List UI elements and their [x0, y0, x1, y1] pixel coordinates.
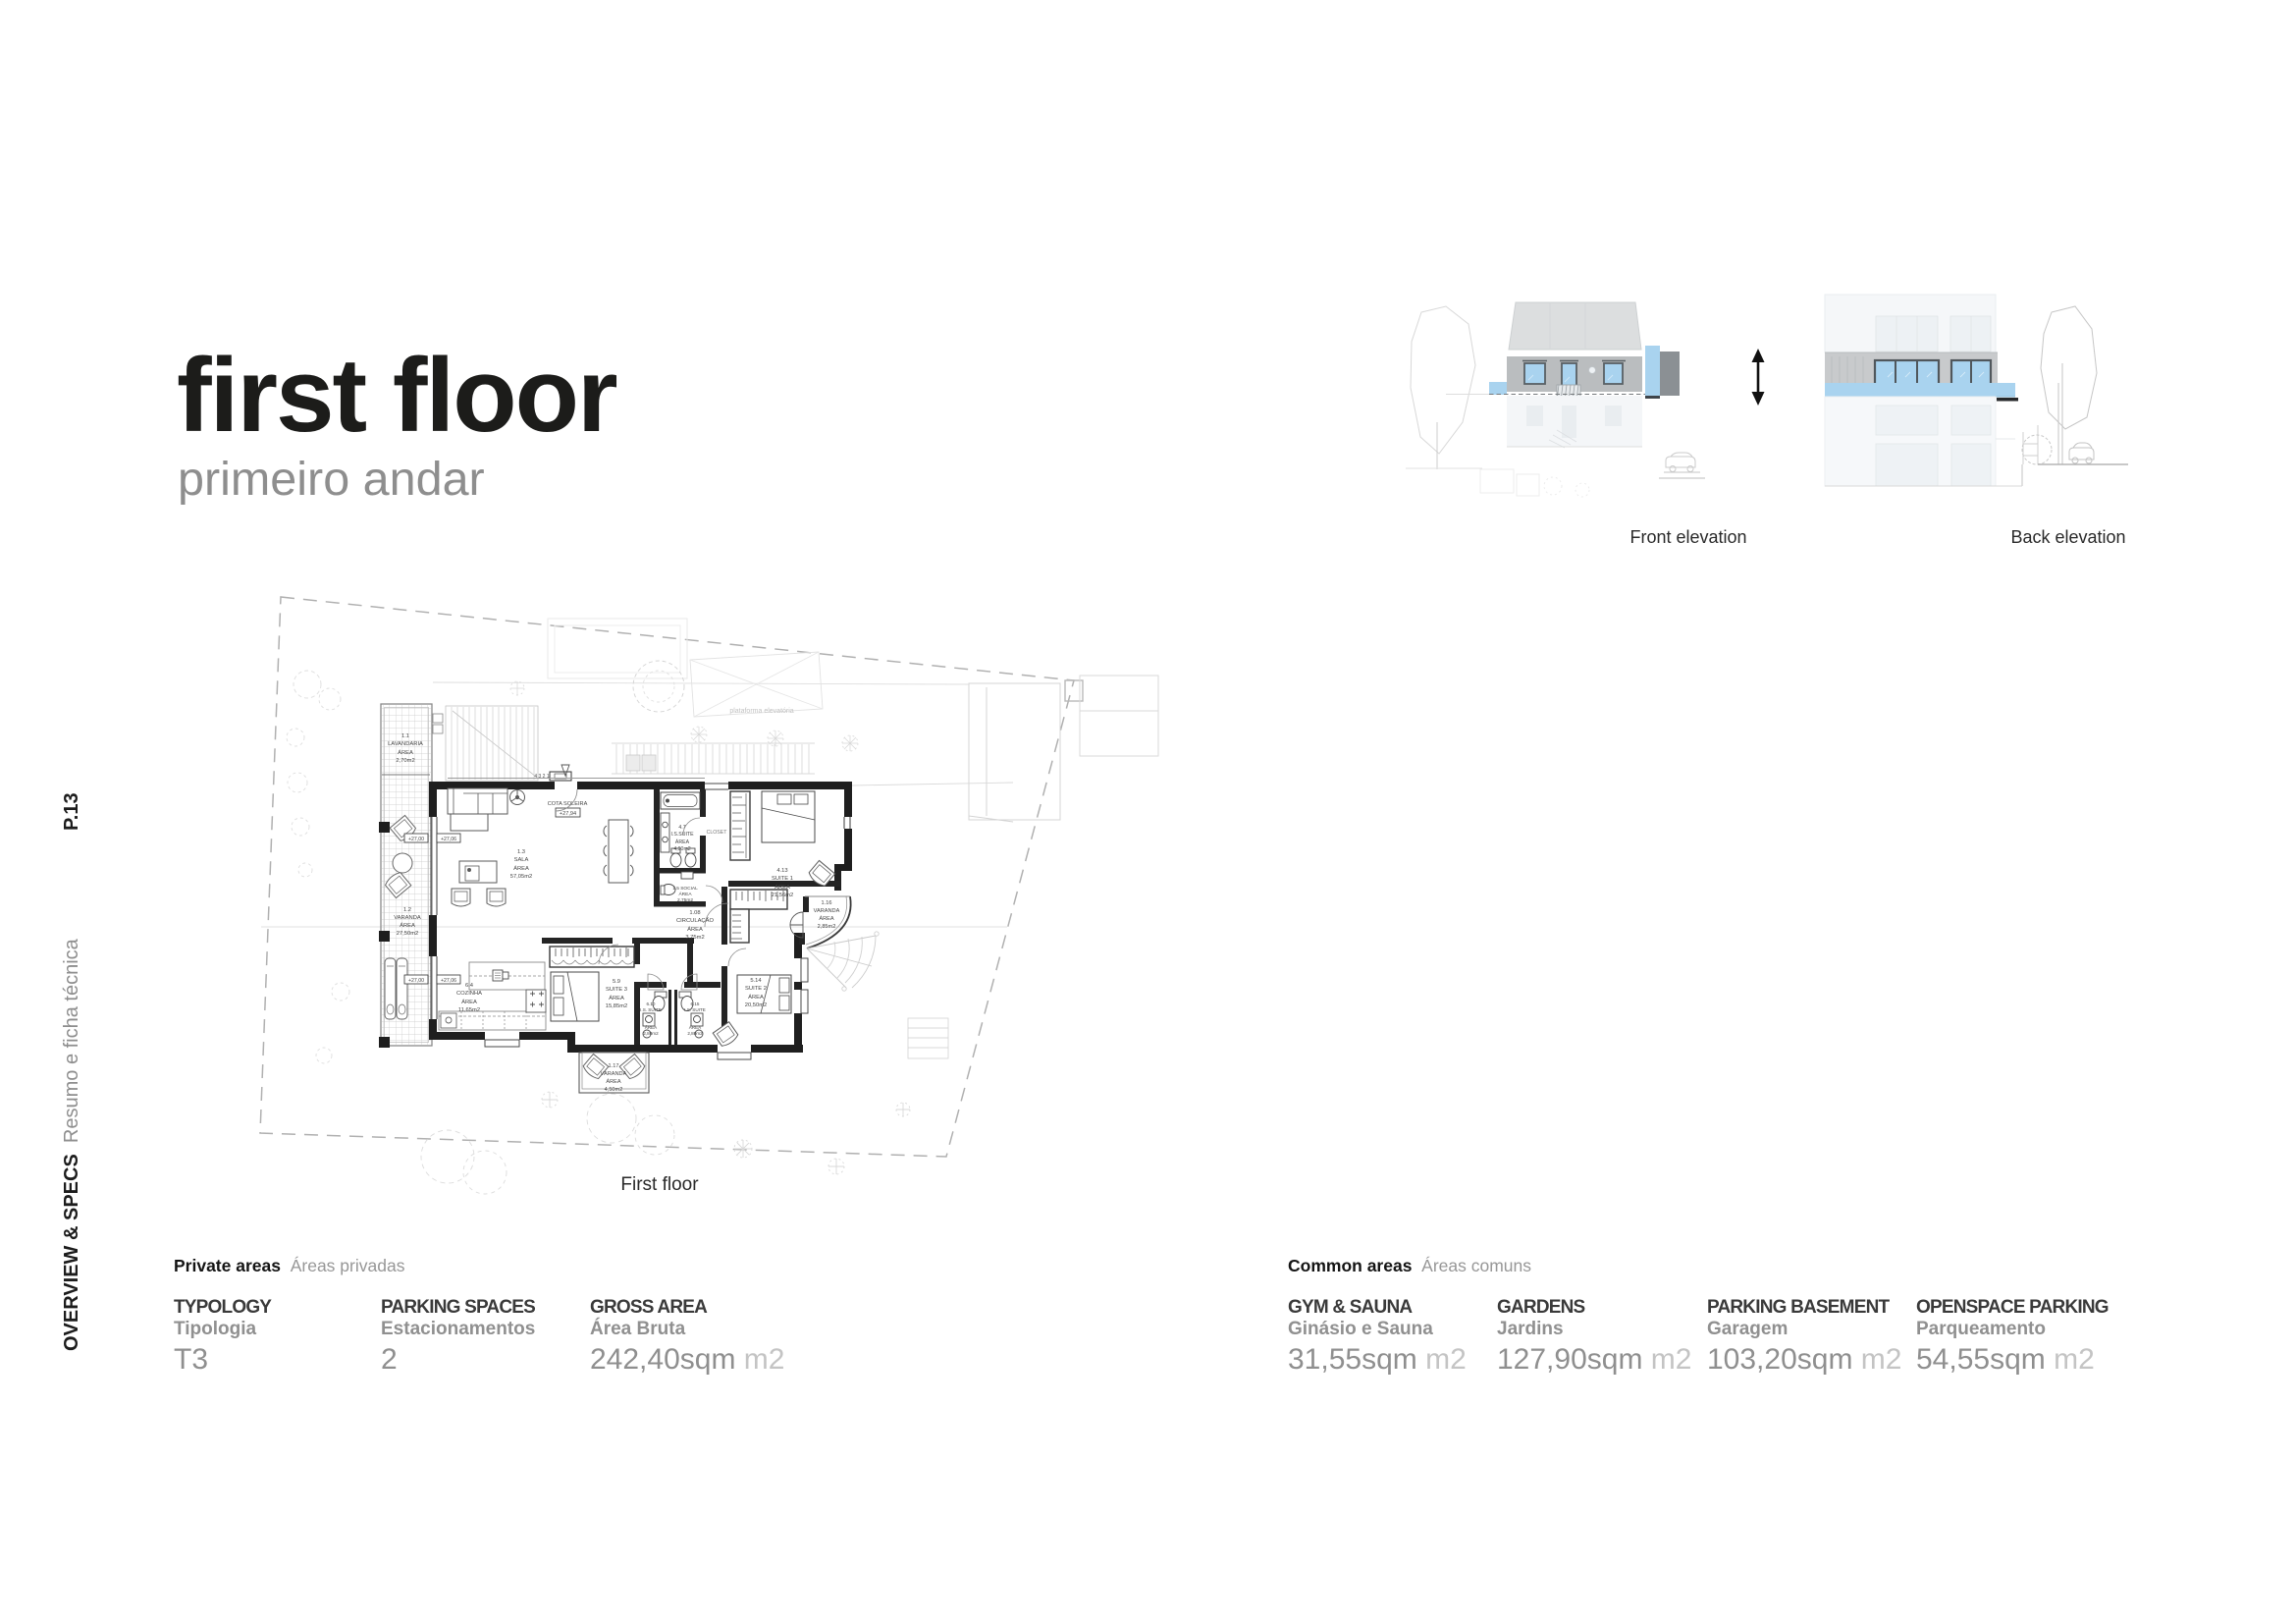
- svg-text:plataforma elevatória: plataforma elevatória: [729, 708, 793, 715]
- svg-text:ÁREA: ÁREA: [748, 994, 764, 1001]
- svg-text:6.15: 6.15: [691, 1001, 700, 1006]
- svg-text:1.1: 1.1: [401, 733, 409, 739]
- svg-text:SALA: SALA: [514, 857, 529, 863]
- svg-text:ÁREA: ÁREA: [678, 891, 692, 897]
- svg-text:ÁREA: ÁREA: [675, 839, 690, 845]
- svg-text:2,80m2: 2,80m2: [643, 1031, 659, 1036]
- svg-text:5.14: 5.14: [750, 978, 762, 984]
- svg-text:1.2: 1.2: [403, 907, 411, 913]
- svg-text:ÁREA: ÁREA: [513, 865, 529, 872]
- svg-text:VARANDA: VARANDA: [601, 1071, 627, 1077]
- svg-text:5.9: 5.9: [613, 979, 620, 985]
- svg-text:4,50m2: 4,50m2: [605, 1087, 623, 1093]
- svg-text:LAVANDARIA: LAVANDARIA: [388, 741, 423, 747]
- svg-text:27,50m2: 27,50m2: [397, 931, 419, 937]
- svg-text:+27,94: +27,94: [560, 811, 576, 817]
- svg-text:4.13: 4.13: [776, 868, 787, 874]
- svg-text:+27,06: +27,06: [441, 978, 456, 984]
- svg-text:6.4: 6.4: [465, 983, 474, 989]
- svg-text:SUITE 2: SUITE 2: [745, 986, 767, 992]
- svg-text:CIRCULAÇÃO: CIRCULAÇÃO: [676, 917, 714, 924]
- svg-text:1.17: 1.17: [609, 1063, 619, 1069]
- svg-text:I.S. SUITE: I.S. SUITE: [640, 1007, 662, 1012]
- svg-text:ÁREA: ÁREA: [609, 995, 624, 1001]
- svg-text:ÁREA: ÁREA: [645, 1024, 658, 1030]
- svg-text:I.S.SUITE: I.S.SUITE: [670, 832, 694, 838]
- svg-text:ÁREA: ÁREA: [689, 1024, 702, 1030]
- svg-text:ÁREA: ÁREA: [606, 1078, 621, 1085]
- svg-text:1.16: 1.16: [822, 900, 832, 906]
- svg-text:COZINHA: COZINHA: [456, 991, 482, 997]
- svg-text:2,80m2: 2,80m2: [687, 1031, 703, 1036]
- svg-text:20,50m2: 20,50m2: [745, 1002, 768, 1008]
- svg-text:4,90m2: 4,90m2: [673, 846, 690, 852]
- svg-text:+27,00: +27,00: [408, 837, 424, 842]
- svg-text:I.S. SUITE: I.S. SUITE: [684, 1007, 706, 1012]
- svg-text:1.5 SOCIAL: 1.5 SOCIAL: [672, 886, 698, 892]
- svg-text:ÁREA: ÁREA: [400, 922, 415, 929]
- svg-text:6.10: 6.10: [647, 1001, 656, 1006]
- svg-text:ÁREA: ÁREA: [461, 999, 477, 1005]
- svg-text:SUITE 3: SUITE 3: [606, 987, 627, 993]
- svg-text:+27,06: +27,06: [441, 837, 456, 842]
- svg-text:VARANDA: VARANDA: [394, 915, 421, 921]
- svg-text:2,70m2: 2,70m2: [396, 758, 414, 764]
- svg-text:3,75m2: 3,75m2: [685, 935, 704, 941]
- svg-text:ÁREA: ÁREA: [398, 749, 413, 756]
- svg-text:COTA SOLEIRA: COTA SOLEIRA: [548, 801, 588, 807]
- svg-text:ÁREA: ÁREA: [687, 926, 703, 933]
- svg-text:4 3 2 1: 4 3 2 1: [534, 774, 550, 780]
- svg-text:SUITE 1: SUITE 1: [772, 876, 793, 882]
- svg-text:57,05m2: 57,05m2: [510, 874, 533, 880]
- svg-text:2,85m2: 2,85m2: [818, 924, 836, 930]
- svg-text:ÁREA: ÁREA: [774, 884, 790, 891]
- svg-text:VARANDA: VARANDA: [814, 908, 840, 914]
- svg-text:1.08: 1.08: [689, 910, 700, 916]
- svg-text:15,85m2: 15,85m2: [606, 1003, 628, 1009]
- svg-text:21,56m2: 21,56m2: [772, 893, 794, 898]
- svg-text:2,75m2: 2,75m2: [677, 897, 693, 903]
- svg-text:CLOSET: CLOSET: [707, 830, 728, 836]
- svg-text:1.3: 1.3: [517, 849, 525, 855]
- svg-text:ÁREA: ÁREA: [819, 915, 834, 922]
- svg-text:+27,00: +27,00: [408, 978, 424, 984]
- svg-text:11,65m2: 11,65m2: [458, 1007, 480, 1013]
